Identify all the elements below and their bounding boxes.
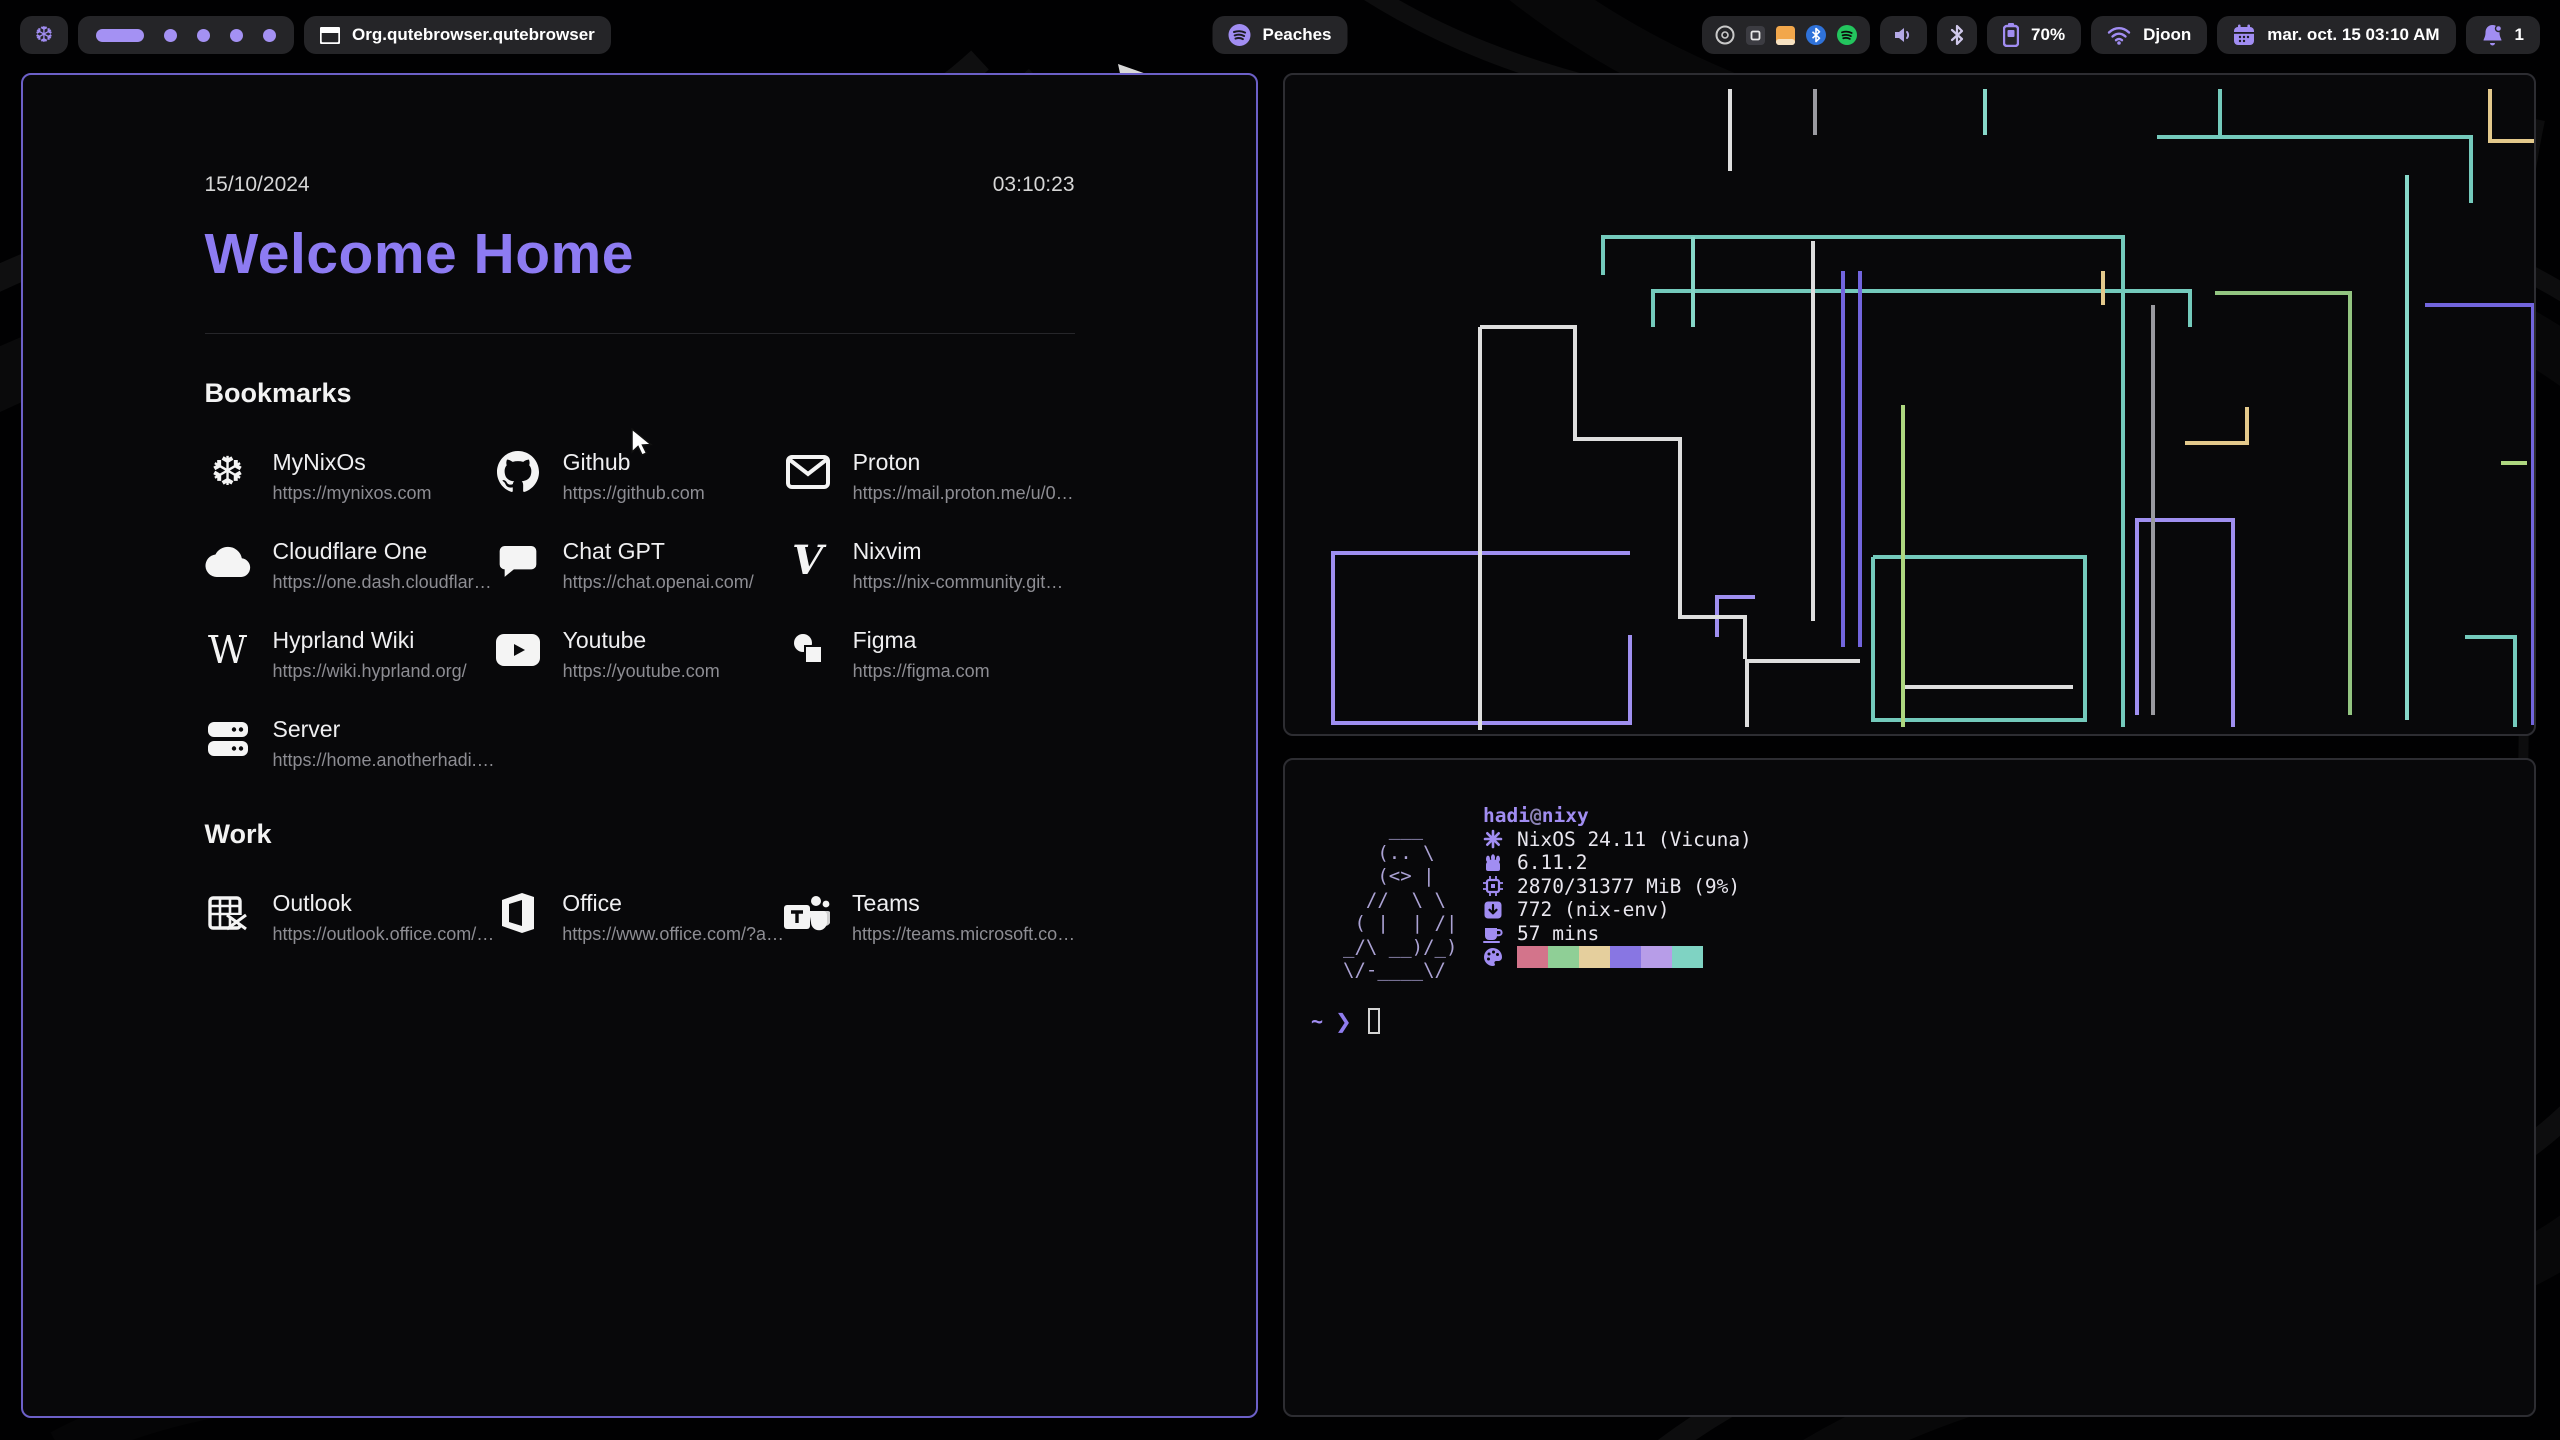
workspace-indicator[interactable]: [78, 16, 294, 54]
bookmark-url: https://wiki.hyprland.org/: [273, 661, 467, 682]
color-swatch: [1548, 946, 1579, 968]
palette-icon: [1483, 947, 1505, 967]
prompt-cwd: ~: [1311, 1009, 1323, 1033]
clock-pill[interactable]: mar. oct. 15 03:10 AM: [2217, 16, 2455, 54]
bookmark-url: https://nix-community.git…: [853, 572, 1064, 593]
bookmarks-heading: Bookmarks: [205, 378, 1075, 409]
workspace-dot[interactable]: [197, 29, 210, 42]
uptime-icon: [1483, 923, 1505, 943]
clock-text: mar. oct. 15 03:10 AM: [2267, 25, 2439, 45]
work-grid: Outlookhttps://outlook.office.com/…Offic…: [205, 890, 1075, 945]
bookmark-url: https://figma.com: [853, 661, 990, 682]
github-icon: [495, 449, 541, 495]
color-swatch: [1610, 946, 1641, 968]
bookmark-name: Outlook: [273, 890, 495, 917]
media-pill[interactable]: Peaches: [1213, 16, 1348, 54]
hostname: nixy: [1542, 804, 1589, 828]
bookmark-name: Hyprland Wiki: [273, 627, 467, 654]
desktop: ❆ Org.qutebrowser.qutebrowser: [0, 0, 2560, 1440]
user-host-line: hadi@nixy: [1483, 804, 1752, 828]
window-icon: [320, 27, 340, 44]
tux-ascii-art: ___ (.. \ (<> | // \ \ ( | | /| _/\ __)/…: [1343, 818, 1457, 983]
bookmark-url: https://teams.microsoft.co…: [852, 924, 1075, 945]
bluetooth-pill[interactable]: [1937, 16, 1977, 54]
network-pill[interactable]: Djoon: [2091, 16, 2207, 54]
bookmark-url: https://home.anotherhadi.…: [273, 750, 495, 771]
wiki-icon: W: [205, 627, 251, 673]
bookmark-name: Nixvim: [853, 538, 1064, 565]
bookmark-teams[interactable]: Teamshttps://teams.microsoft.co…: [784, 890, 1075, 945]
fetch-line: 2870/31377 MiB (9%): [1483, 875, 1752, 899]
packages-icon: [1483, 900, 1505, 920]
bookmark-url: https://www.office.com/?a…: [562, 924, 784, 945]
terminal-cursor: [1368, 1008, 1380, 1034]
bookmark-url: https://youtube.com: [563, 661, 720, 682]
chat-icon: [495, 538, 541, 584]
bookmark-url: https://outlook.office.com/…: [273, 924, 495, 945]
system-tray[interactable]: [1702, 16, 1870, 54]
active-window-title: Org.qutebrowser.qutebrowser: [352, 25, 595, 45]
fetch-line: NixOS 24.11 (Vicuna): [1483, 828, 1752, 852]
bookmark-name: Chat GPT: [563, 538, 754, 565]
bookmarks-grid: ❆MyNixOshttps://mynixos.comGithubhttps:/…: [205, 449, 1075, 771]
notifications-pill[interactable]: 1: [2466, 16, 2540, 54]
notification-count: 1: [2515, 25, 2524, 45]
memory-icon: [1483, 876, 1505, 896]
server-icon: [205, 716, 251, 762]
bookmark-name: Office: [562, 890, 784, 917]
bookmark-url: https://github.com: [563, 483, 705, 504]
bookmark-url: https://mail.proton.me/u/0…: [853, 483, 1074, 504]
workspace-dot[interactable]: [164, 29, 177, 42]
bookmark-hyprland-wiki[interactable]: WHyprland Wikihttps://wiki.hyprland.org/: [205, 627, 495, 682]
bookmark-name: Youtube: [563, 627, 720, 654]
bookmark-url: https://chat.openai.com/: [563, 572, 754, 593]
bookmark-name: Teams: [852, 890, 1075, 917]
bookmark-url: https://mynixos.com: [273, 483, 432, 504]
pipes-art: [1285, 75, 2536, 736]
os-icon: [1483, 829, 1505, 849]
teams-icon: [784, 890, 830, 936]
active-window-pill[interactable]: Org.qutebrowser.qutebrowser: [304, 16, 611, 54]
calendar-icon: [2233, 24, 2255, 46]
startpage-date: 15/10/2024: [205, 173, 310, 197]
nixos-logo-icon: ❆: [35, 23, 53, 48]
media-title: Peaches: [1263, 25, 1332, 45]
color-swatch: [1641, 946, 1672, 968]
fetch-line: 57 mins: [1483, 922, 1752, 946]
prompt-chevron: ❯: [1335, 1009, 1352, 1033]
divider: [205, 333, 1075, 334]
fetch-value: NixOS 24.11 (Vicuna): [1517, 828, 1752, 852]
bookmark-cloudflare-one[interactable]: Cloudflare Onehttps://one.dash.cloudflar…: [205, 538, 495, 593]
bookmark-figma[interactable]: Figmahttps://figma.com: [785, 627, 1075, 682]
workspace-dot[interactable]: [230, 29, 243, 42]
bookmark-outlook[interactable]: Outlookhttps://outlook.office.com/…: [205, 890, 495, 945]
fetch-value: 2870/31377 MiB (9%): [1517, 875, 1740, 899]
battery-percent: 70%: [2031, 25, 2065, 45]
terminal-window[interactable]: ___ (.. \ (<> | // \ \ ( | | /| _/\ __)/…: [1283, 758, 2536, 1417]
figma-icon: [785, 627, 831, 673]
bookmark-proton[interactable]: Protonhttps://mail.proton.me/u/0…: [785, 449, 1075, 504]
fastfetch-info: hadi@nixy NixOS 24.11 (Vicuna)6.11.22870…: [1483, 804, 1752, 969]
fetch-line: 772 (nix-env): [1483, 898, 1752, 922]
tray-disc-icon[interactable]: [1715, 25, 1735, 45]
bookmark-nixvim[interactable]: VNixvimhttps://nix-community.git…: [785, 538, 1075, 593]
fetch-value: 57 mins: [1517, 922, 1599, 946]
office-icon: [494, 890, 540, 936]
workspace-active[interactable]: [96, 29, 144, 42]
work-heading: Work: [205, 819, 1075, 850]
volume-icon: [1893, 25, 1914, 45]
tray-bluetooth-blue-icon[interactable]: [1806, 25, 1826, 45]
palette-line: [1483, 945, 1752, 969]
status-bar: ❆ Org.qutebrowser.qutebrowser: [20, 16, 2540, 56]
bookmark-chat-gpt[interactable]: Chat GPThttps://chat.openai.com/: [495, 538, 785, 593]
bookmark-name: Server: [273, 716, 495, 743]
tray-spotify-green-icon[interactable]: [1837, 25, 1857, 45]
bookmark-name: MyNixOs: [273, 449, 432, 476]
fetch-value: 772 (nix-env): [1517, 898, 1670, 922]
wifi-icon: [2107, 26, 2131, 45]
username: hadi: [1483, 804, 1530, 828]
startpage-time: 03:10:23: [993, 173, 1075, 197]
kernel-icon: [1483, 853, 1505, 873]
tray-app-dark-icon[interactable]: [1746, 26, 1765, 45]
bookmark-name: Figma: [853, 627, 990, 654]
launcher-button[interactable]: ❆: [20, 16, 68, 54]
outlook-icon: [205, 890, 251, 936]
bookmark-url: https://one.dash.cloudflar…: [273, 572, 492, 593]
bookmark-youtube[interactable]: Youtubehttps://youtube.com: [495, 627, 785, 682]
fetch-value: 6.11.2: [1517, 851, 1587, 875]
mail-icon: [785, 449, 831, 495]
color-swatch: [1517, 946, 1548, 968]
battery-pill[interactable]: 70%: [1987, 16, 2081, 54]
terminal-color-swatches: [1517, 946, 1703, 968]
color-swatch: [1672, 946, 1703, 968]
bookmark-server[interactable]: Serverhttps://home.anotherhadi.…: [205, 716, 495, 771]
spotify-icon: [1229, 24, 1251, 46]
color-swatch: [1579, 946, 1610, 968]
nixos-icon: ❆: [205, 449, 251, 495]
bookmark-name: Cloudflare One: [273, 538, 492, 565]
bookmark-mynixos[interactable]: ❆MyNixOshttps://mynixos.com: [205, 449, 495, 504]
page-title: Welcome Home: [205, 221, 1075, 287]
youtube-icon: [495, 627, 541, 673]
shell-prompt: ~ ❯: [1311, 1008, 1380, 1034]
volume-pill[interactable]: [1880, 16, 1927, 54]
bookmark-office[interactable]: Officehttps://www.office.com/?a…: [494, 890, 784, 945]
bookmark-name: Proton: [853, 449, 1074, 476]
vim-icon: V: [785, 538, 831, 584]
qutebrowser-window: 15/10/2024 03:10:23 Welcome Home Bookmar…: [21, 73, 1258, 1418]
tray-files-orange-icon[interactable]: [1776, 26, 1795, 45]
bell-icon: [2482, 24, 2503, 47]
pipes-terminal-window: [1283, 73, 2536, 736]
mouse-cursor: [630, 428, 656, 458]
bluetooth-icon: [1950, 24, 1964, 46]
workspace-dot[interactable]: [263, 29, 276, 42]
fetch-line: 6.11.2: [1483, 851, 1752, 875]
network-ssid: Djoon: [2143, 25, 2191, 45]
cloud-icon: [205, 538, 251, 584]
battery-icon: [2003, 23, 2019, 47]
